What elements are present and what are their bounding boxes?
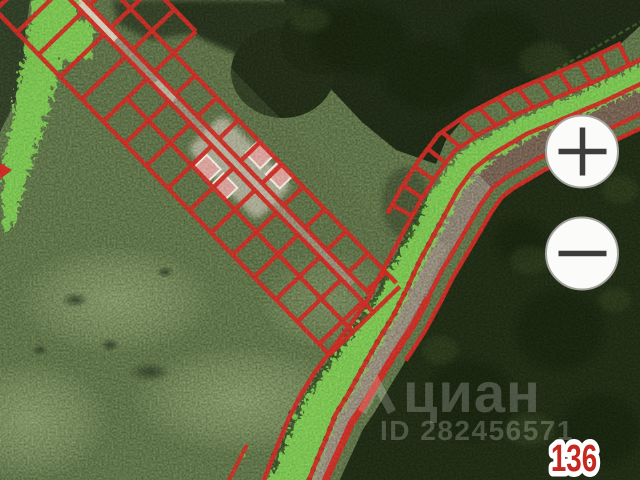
svg-text:136: 136 <box>551 438 597 480</box>
svg-text:ID 282456571: ID 282456571 <box>380 415 574 446</box>
